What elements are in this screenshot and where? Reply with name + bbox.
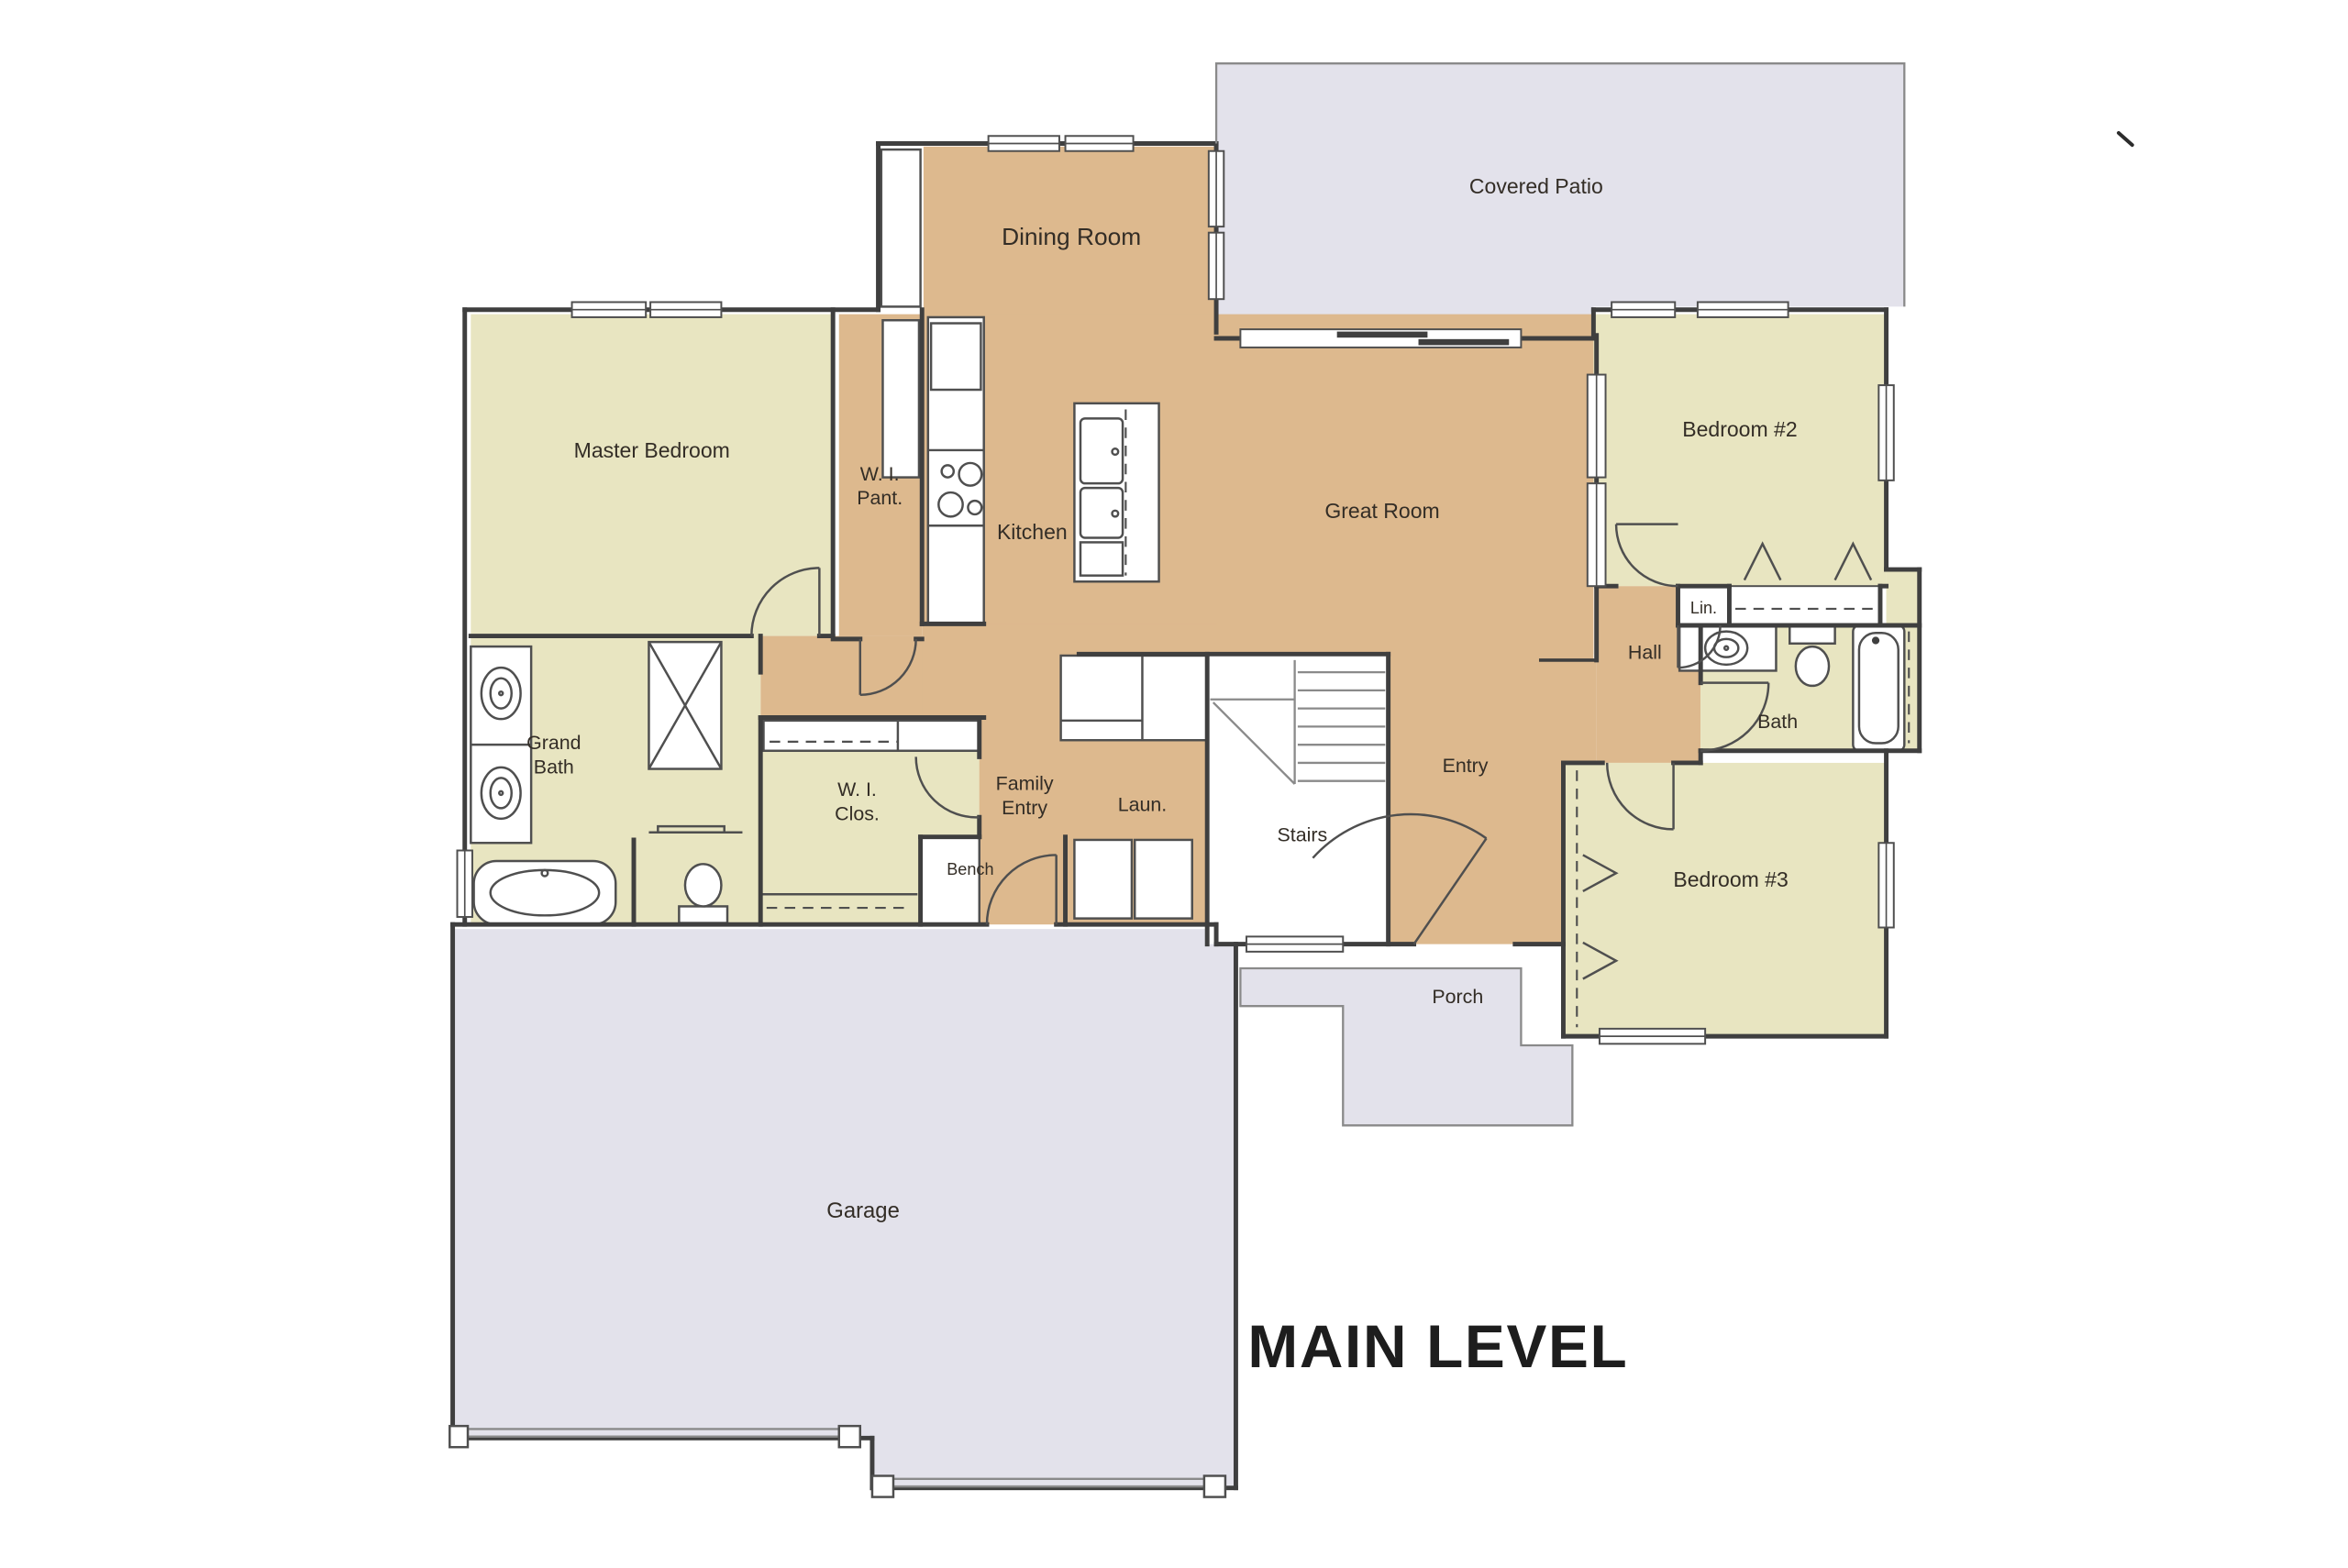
laundry-cabinets	[1061, 656, 1208, 740]
label-entry: Entry	[1443, 755, 1489, 777]
label-garage: Garage	[826, 1198, 900, 1223]
kitchen-island	[1074, 403, 1158, 581]
porch-floor	[1240, 968, 1572, 1125]
label-wi-clos-2: Clos.	[835, 803, 880, 825]
master-window	[572, 302, 722, 316]
master-bedroom-floor	[471, 315, 833, 636]
stray-mark	[2119, 133, 2132, 145]
label-linen: Lin.	[1690, 599, 1717, 617]
label-laundry: Laun.	[1118, 794, 1167, 816]
label-bench: Bench	[947, 860, 993, 878]
label-grand-bath-2: Bath	[534, 756, 574, 778]
label-bedroom-3: Bedroom #3	[1673, 867, 1788, 891]
bedroom-2-floor	[1593, 315, 1886, 587]
grand-bath-window	[458, 850, 472, 916]
label-covered-patio: Covered Patio	[1469, 174, 1603, 198]
label-stairs: Stairs	[1278, 824, 1328, 846]
bedroom-3-floor	[1563, 763, 1886, 1036]
label-grand-bath-1: Grand	[526, 732, 581, 754]
label-bath: Bath	[1757, 711, 1798, 733]
label-hall: Hall	[1628, 641, 1662, 663]
label-bedroom-2: Bedroom #2	[1682, 417, 1797, 441]
label-great-room: Great Room	[1324, 499, 1439, 523]
shower	[648, 642, 721, 768]
plan-title: MAIN LEVEL	[1247, 1312, 1628, 1380]
label-master-bedroom: Master Bedroom	[574, 438, 730, 462]
stairs-room	[1207, 654, 1388, 944]
label-wi-clos-1: W. I.	[837, 778, 877, 801]
dining-hutch	[881, 149, 921, 306]
label-family-entry-1: Family	[996, 773, 1054, 795]
floor-plan-drawing: Covered Patio Dining Room Master Bedroom…	[0, 0, 2348, 1568]
entry-sidelite-window	[1246, 936, 1343, 951]
bench-seat	[921, 837, 980, 925]
label-family-entry-2: Entry	[1002, 797, 1047, 819]
bathtub	[1853, 625, 1909, 751]
kitchen-counter	[928, 317, 984, 624]
label-porch: Porch	[1432, 986, 1483, 1008]
stairs-floor	[1207, 654, 1388, 944]
sliding-patio-door	[1240, 329, 1521, 348]
label-kitchen: Kitchen	[997, 520, 1068, 544]
label-wi-pant-2: Pant.	[857, 487, 903, 509]
floor-plan-page: Covered Patio Dining Room Master Bedroom…	[0, 0, 2348, 1568]
freestanding-tub	[474, 861, 616, 924]
pantry-shelves	[882, 320, 918, 477]
label-dining-room: Dining Room	[1002, 223, 1141, 250]
closet-shelf-top	[763, 721, 979, 751]
label-wi-pant-1: W. I.	[860, 463, 900, 485]
double-vanity-sinks	[471, 646, 531, 843]
